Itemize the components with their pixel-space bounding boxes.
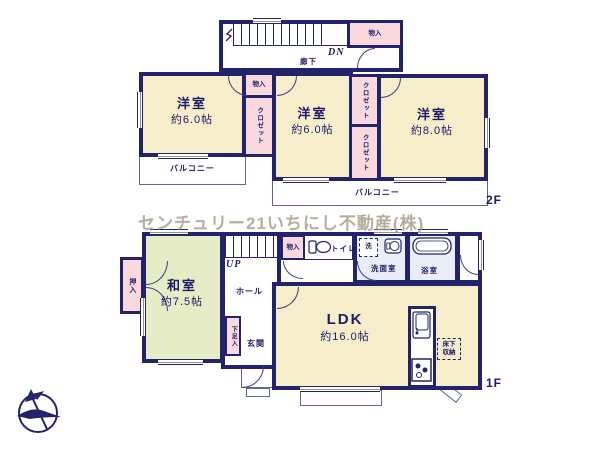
f2-stairs-direction: DN <box>328 47 344 58</box>
f1-underfloor-storage: 床下収納 <box>437 338 461 360</box>
f2-room-storage-label: 物入 <box>253 81 266 88</box>
f2-balcony-main-label: バルコニー <box>355 187 400 198</box>
f1-window-nook <box>478 240 484 270</box>
f1-underfloor-storage-label: 床下収納 <box>441 341 457 358</box>
f1-window-tatami-bottom <box>158 359 203 365</box>
f1-hall-storage-label: 物入 <box>287 244 300 251</box>
f2-room-west-left-label: 洋室 約6.0帖 <box>142 96 242 127</box>
f2-closet-center-label: クロゼット <box>255 107 262 145</box>
f2-closet-right-bottom: クロゼット <box>349 124 380 181</box>
room-size: 約6.0帖 <box>142 113 242 127</box>
f1-shoe-cabinet-label: 下足入 <box>230 326 237 347</box>
f2-closet-right-bottom-label: クロゼット <box>361 134 368 172</box>
kitchen-sink-icon <box>412 311 431 339</box>
room-name: LDK <box>290 310 400 330</box>
watermark: センチュリー21いちにし不動産(株) <box>138 209 424 234</box>
f2-hall-storage-label: 物入 <box>369 30 382 37</box>
f2-staircase <box>233 24 325 46</box>
f1-tatami-room-label: 和室 約7.5帖 <box>140 278 224 309</box>
f1-window-ldk-bottom <box>300 386 380 392</box>
f2-window-right <box>394 177 446 183</box>
room-name: 洋室 <box>142 96 242 113</box>
f2-window-right-wall <box>484 118 490 148</box>
bathtub-icon <box>412 237 452 255</box>
f2-floor-label: 2F <box>486 193 502 207</box>
f1-floor-label: 1F <box>486 376 502 390</box>
f2-corridor-label: 廊下 <box>300 56 317 67</box>
f1-oshiire-label: 押入 <box>128 278 136 294</box>
f2-corridor-window <box>253 18 281 24</box>
floorplan-canvas: センチュリー21いちにし不動産(株) DN 廊下 物入 洋室 約6.0帖 物入 … <box>0 0 600 450</box>
f1-hall-label: ホール <box>236 286 263 297</box>
f2-room-west-center-label: 洋室 約6.0帖 <box>272 106 353 137</box>
f2-balcony-left-label: バルコニー <box>170 163 215 174</box>
f1-toilet-label: トイレ <box>331 243 357 254</box>
f1-porch-step <box>246 388 270 397</box>
room-name: 和室 <box>140 278 224 295</box>
room-name: 洋室 <box>272 106 353 123</box>
f1-laundry-space: 洗 <box>359 238 378 257</box>
f2-room-west-right-label: 洋室 約8.0帖 <box>382 107 482 138</box>
f1-ldk-label: LDK 約16.0帖 <box>290 310 400 344</box>
room-size: 約8.0帖 <box>382 124 482 138</box>
f1-laundry-label: 洗 <box>365 243 372 251</box>
f2-closet-right-top: クロゼット <box>349 74 380 127</box>
room-size: 約16.0帖 <box>290 330 400 344</box>
room-size: 約6.0帖 <box>272 123 353 137</box>
f2-window-center <box>283 177 329 183</box>
room-name: 洋室 <box>382 107 482 124</box>
f1-washroom-label: 洗面室 <box>371 263 397 274</box>
compass-icon <box>12 386 64 438</box>
f1-staircase <box>225 236 277 258</box>
f1-shoe-cabinet: 下足入 <box>225 316 241 356</box>
sink-icon <box>384 238 402 254</box>
f1-entrance-label: 玄関 <box>247 338 265 349</box>
toilet-icon <box>308 239 332 255</box>
stair-arrow-icon <box>224 28 234 42</box>
f2-hall-storage: 物入 <box>347 20 403 48</box>
f1-bathroom-label: 浴室 <box>421 265 438 276</box>
room-size: 約7.5帖 <box>140 295 224 309</box>
f1-hall-storage: 物入 <box>281 235 305 260</box>
f2-closet-center: クロゼット <box>243 95 275 157</box>
f2-stair-line <box>325 45 395 46</box>
f2-closet-right-top-label: クロゼット <box>361 82 368 120</box>
f2-window-balcony-left <box>158 153 208 159</box>
f1-deck <box>300 390 382 406</box>
stove-icon <box>411 358 432 382</box>
f1-stairs-direction: UP <box>226 259 241 270</box>
